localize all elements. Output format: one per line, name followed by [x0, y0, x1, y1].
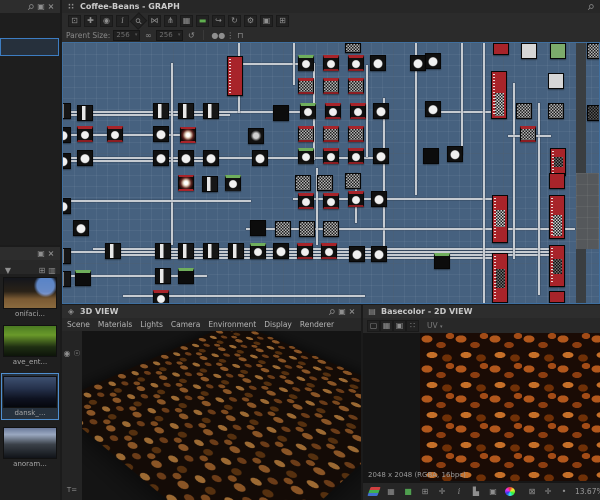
graph-node-noise[interactable]	[317, 175, 333, 191]
library-item[interactable]: anoram...	[2, 427, 58, 468]
graph-size-toolbar: Parent Size: 256▾ ∞ 256▾ ↺ ●●⋮⊓	[62, 28, 600, 42]
background-color-icon[interactable]: ■	[403, 487, 413, 497]
graph-node-redshape[interactable]	[297, 243, 313, 259]
graph-node-noise[interactable]	[345, 43, 361, 53]
graph-wire	[366, 65, 368, 157]
graph-node-blend[interactable]	[77, 105, 93, 121]
graph-node-shape[interactable]	[62, 198, 71, 214]
dot-icon[interactable]: •	[559, 487, 569, 497]
uv-select[interactable]: UV ▾	[427, 321, 443, 330]
basecolor-texture	[420, 333, 600, 481]
image-info-icon[interactable]: ▣	[488, 487, 498, 497]
image-icon[interactable]: ▦	[180, 15, 193, 27]
graph-node-blend[interactable]	[178, 103, 194, 119]
graph-node-blend[interactable]	[228, 243, 244, 259]
graph-node-redn3[interactable]	[550, 148, 566, 176]
graph-node-green[interactable]	[550, 43, 566, 59]
graph-node-greenshape[interactable]	[300, 103, 316, 119]
graph-node-redshape[interactable]	[348, 148, 364, 164]
explorer-panel: ⚲▣×	[0, 0, 60, 245]
view2d-viewport[interactable]: 2048 x 2048 (RGBA, 16bpc)	[363, 333, 600, 483]
graph-panel: ∷ Coffee-Beans - GRAPH ⚲ ⊡✚◉i⚲⋈⋔▦▬↪↻⚙▣⊞ …	[62, 0, 600, 304]
zoom-level[interactable]: 13.67%	[575, 487, 600, 496]
library-thumbnails: onifaci...ave_ent...dansk_...anoram...	[0, 274, 60, 468]
export-icon[interactable]: ▣	[260, 15, 273, 27]
graph-wire	[171, 63, 173, 245]
graph-node-red[interactable]	[549, 173, 565, 189]
graph-node-redn3[interactable]	[492, 253, 508, 303]
graph-node-redshape[interactable]	[325, 103, 341, 119]
graph-wire	[513, 83, 515, 259]
view2d-panel: ▤ Basecolor - 2D VIEW ▢▦▣∷ UV ▾ 2048 x 2…	[363, 305, 600, 500]
thumbnail-label: anoram...	[2, 460, 58, 468]
graph-node-blend[interactable]	[62, 103, 71, 119]
graph-wire	[246, 228, 575, 230]
graph-node-shape[interactable]	[178, 150, 194, 166]
parent-height-select[interactable]: 256▾	[156, 30, 183, 41]
graph-node-noise[interactable]	[299, 221, 315, 237]
graph-node-white[interactable]	[548, 73, 564, 89]
thumbnail-label: onifaci...	[2, 310, 58, 318]
thumbnail-label: dansk_...	[2, 409, 58, 417]
pin-frame-icon[interactable]: ⊓	[235, 30, 245, 40]
graph-node-glow[interactable]	[178, 175, 194, 191]
center-view-icon[interactable]: ✛	[543, 487, 553, 497]
explorer-selected-item[interactable]	[0, 38, 59, 56]
close-icon[interactable]: ×	[347, 307, 357, 317]
view2d-bottom-toolbar: ▦■⊞✛i▙▣ ⊠✛• 13.67%	[363, 483, 600, 500]
tools-icon[interactable]: ⚙	[244, 15, 257, 27]
parent-width-select[interactable]: 256▾	[113, 30, 140, 41]
view2d-icon: ▤	[367, 307, 377, 317]
graph-node-shape[interactable]	[373, 103, 389, 119]
search-icon[interactable]: ⚲	[130, 12, 148, 30]
graph-node-darkgreen[interactable]	[75, 270, 91, 286]
graph-tab-title[interactable]: Coffee-Beans - GRAPH	[80, 2, 180, 11]
substance-designer-window: ⚲▣× ▣× ▼ ⊞▥ onifaci...ave_ent...dansk_..…	[0, 0, 600, 500]
menu-renderer[interactable]: Renderer	[300, 320, 334, 329]
view3d-header: ◈ 3D VIEW ⚲▣×	[62, 305, 361, 318]
graph-node-shape[interactable]	[373, 148, 389, 164]
menu-environment[interactable]: Environment	[208, 320, 256, 329]
view3d-panel: ◈ 3D VIEW ⚲▣× SceneMaterialsLightsCamera…	[62, 305, 361, 500]
graph-node-glow[interactable]	[180, 127, 196, 143]
menu-camera[interactable]: Camera	[171, 320, 200, 329]
graph-node-shape[interactable]	[203, 150, 219, 166]
graph-node-shape[interactable]	[153, 126, 169, 142]
view3d-menubar: SceneMaterialsLightsCameraEnvironmentDis…	[62, 318, 361, 331]
explorer-header: ⚲▣×	[0, 0, 60, 13]
graph-node-blend[interactable]	[62, 248, 71, 264]
menu-display[interactable]: Display	[264, 320, 292, 329]
graph-node-shape[interactable]	[425, 53, 441, 69]
graph-node-darkgreen[interactable]	[178, 268, 194, 284]
library-item[interactable]: dansk_...	[1, 373, 59, 420]
graph-node-redshape[interactable]	[350, 103, 366, 119]
graph-node-shape[interactable]	[371, 191, 387, 207]
info-icon[interactable]: i	[116, 15, 129, 27]
graph-tab-icon: ∷	[66, 2, 76, 12]
menu-lights[interactable]: Lights	[140, 320, 163, 329]
graph-frame[interactable]	[576, 173, 600, 249]
graph-node-rednoise[interactable]	[298, 126, 314, 142]
graph-wire	[538, 103, 540, 295]
checker-icon[interactable]: ▦	[386, 487, 396, 497]
graph-node-blend[interactable]	[178, 243, 194, 259]
filter-icon[interactable]: ▼	[3, 265, 13, 275]
parent-size-label: Parent Size:	[66, 31, 110, 40]
graph-node-tallred[interactable]	[227, 56, 243, 96]
graph-wire	[293, 43, 295, 85]
graph-tabbar: ∷ Coffee-Beans - GRAPH ⚲	[62, 0, 600, 13]
graph-node-dark[interactable]	[273, 105, 289, 121]
fit-view-icon[interactable]: ⊠	[527, 487, 537, 497]
bulb-icon[interactable]: ☉	[72, 349, 82, 359]
histogram-icon[interactable]: ▙	[471, 487, 481, 497]
copy-icon[interactable]: ▣	[393, 320, 406, 332]
graph-node-redshape[interactable]	[323, 193, 339, 209]
colorwheel-icon[interactable]	[505, 487, 515, 496]
graph-node-shape[interactable]	[252, 150, 268, 166]
graph-node-noise[interactable]	[548, 103, 564, 119]
graph-node-rednoise[interactable]	[298, 78, 314, 94]
cursor-pick-icon[interactable]: ✛	[437, 487, 447, 497]
graph-node-redshape[interactable]	[321, 243, 337, 259]
graph-node-tallrednoise[interactable]	[491, 71, 507, 119]
link-nodes-icon[interactable]: ⋈	[148, 15, 161, 27]
graph-node-rednoise[interactable]	[323, 78, 339, 94]
graph-node-ball[interactable]	[248, 128, 264, 144]
thumbnail-label: ave_ent...	[2, 358, 58, 366]
pan-icon[interactable]: ✚	[84, 15, 97, 27]
view3d-side-toolbar: ◉☉ T=	[62, 331, 82, 500]
reset-size-icon[interactable]: ↺	[186, 30, 196, 40]
grid-view-icon[interactable]: ⊞	[37, 265, 47, 275]
graph-node-noise[interactable]	[345, 173, 361, 189]
graph-canvas[interactable]	[62, 42, 600, 304]
graph-node-redshape[interactable]	[348, 191, 364, 207]
snap-dots-icon[interactable]: ⋮	[225, 30, 235, 40]
environment-thumbnail[interactable]	[3, 325, 57, 357]
graph-node-redshape[interactable]	[298, 193, 314, 209]
menu-materials[interactable]: Materials	[98, 320, 132, 329]
view2d-toolbar: ▢▦▣∷ UV ▾	[363, 318, 600, 333]
graph-wire	[461, 43, 463, 155]
graph-node-shape[interactable]	[62, 153, 71, 169]
graph-node-dark[interactable]	[250, 220, 266, 236]
view3d-icon: ◈	[66, 307, 76, 317]
graph-toolbar: ⊡✚◉i⚲⋈⋔▦▬↪↻⚙▣⊞	[62, 13, 600, 28]
graph-node-redshape[interactable]	[323, 55, 339, 71]
graph-wire	[483, 43, 485, 303]
texture-info-label: 2048 x 2048 (RGBA, 16bpc)	[368, 471, 466, 479]
graph-node-greenshape[interactable]	[225, 175, 241, 191]
graph-node-darknoise[interactable]	[587, 105, 600, 121]
channels-icon[interactable]	[367, 487, 380, 496]
graph-node-shape[interactable]	[273, 243, 289, 259]
graph-node-red[interactable]	[549, 291, 565, 303]
coffee-beans-plane	[82, 331, 361, 500]
library-item[interactable]: ave_ent...	[2, 325, 58, 366]
graph-node-red[interactable]	[493, 43, 509, 55]
graph-node-shape[interactable]	[371, 246, 387, 262]
node-tree-icon[interactable]: ⋔	[164, 15, 177, 27]
graph-node-shape[interactable]	[153, 150, 169, 166]
graph-node-shape[interactable]	[62, 127, 71, 143]
library-toolbar: ▼ ⊞▥	[0, 260, 60, 274]
detail-view-icon[interactable]: ▥	[47, 265, 57, 275]
graph-node-tallrednoise2[interactable]	[492, 195, 508, 243]
graph-node-rednoise[interactable]	[323, 126, 339, 142]
graph-node-shape[interactable]	[425, 101, 441, 117]
graph-node-noise[interactable]	[275, 221, 291, 237]
graph-node-redshape[interactable]	[153, 290, 169, 304]
transform-frame-icon[interactable]: ⊡	[68, 15, 81, 27]
graph-node-white[interactable]	[521, 43, 537, 59]
graph-node-shape[interactable]	[349, 246, 365, 262]
graph-node-shape[interactable]	[370, 55, 386, 71]
grid-icon[interactable]: ⊞	[420, 487, 430, 497]
graph-node-rednoise[interactable]	[348, 78, 364, 94]
graph-node-redshape[interactable]	[77, 126, 93, 142]
graph-node-blend[interactable]	[62, 271, 71, 287]
view2d-title: Basecolor - 2D VIEW	[381, 307, 472, 316]
graph-node-greenshape[interactable]	[250, 243, 266, 259]
graph-node-greenshape[interactable]	[298, 148, 314, 164]
graph-node-blend[interactable]	[155, 243, 171, 259]
graph-node-shape[interactable]	[410, 55, 426, 71]
color-mode-icon[interactable]: ▬	[196, 15, 209, 27]
view3d-title: 3D VIEW	[80, 307, 118, 316]
graph-node-greenshape[interactable]	[298, 55, 314, 71]
graph-node-dark[interactable]	[423, 148, 439, 164]
link-graph-icon[interactable]: ∷	[406, 320, 419, 332]
graph-node-shape[interactable]	[73, 220, 89, 236]
view2d-header: ▤ Basecolor - 2D VIEW	[363, 305, 600, 318]
graph-node-redshape[interactable]	[107, 126, 123, 142]
frame-icon[interactable]: ⊞	[276, 15, 289, 27]
graph-node-tallrednoise[interactable]	[549, 195, 565, 239]
camera-icon[interactable]: ◉	[100, 15, 113, 27]
graph-node-noise[interactable]	[323, 221, 339, 237]
dot-pair-icon[interactable]: ●●	[211, 30, 225, 40]
view3d-viewport[interactable]	[82, 331, 361, 500]
library-item[interactable]: onifaci...	[2, 277, 58, 318]
environment-thumbnail[interactable]	[3, 427, 57, 459]
graph-node-shape[interactable]	[447, 146, 463, 162]
graph-node-blend[interactable]	[153, 103, 169, 119]
graph-node-noise[interactable]	[295, 175, 311, 191]
graph-node-noise[interactable]	[516, 103, 532, 119]
environment-thumbnail[interactable]	[3, 277, 57, 309]
info-icon[interactable]: i	[454, 487, 464, 497]
new-view-icon[interactable]: ▢	[367, 320, 380, 332]
graph-node-blend[interactable]	[155, 268, 171, 284]
graph-node-shape[interactable]	[77, 150, 93, 166]
library-panel: ▣× ▼ ⊞▥ onifaci...ave_ent...dansk_...ano…	[0, 247, 60, 500]
graph-node-rednoise[interactable]	[520, 126, 536, 142]
wire-style-icon[interactable]: ↪	[212, 15, 225, 27]
compute-icon[interactable]: ↻	[228, 15, 241, 27]
graph-node-blend[interactable]	[105, 243, 121, 259]
graph-node-blend[interactable]	[203, 243, 219, 259]
graph-node-blend[interactable]	[202, 176, 218, 192]
graph-node-rednoise[interactable]	[348, 126, 364, 142]
graph-pin-icon[interactable]: ⚲	[584, 0, 598, 14]
menu-scene[interactable]: Scene	[67, 320, 90, 329]
camera-icon[interactable]: ◉	[62, 349, 72, 359]
link-size-icon[interactable]: ∞	[143, 30, 153, 40]
environment-thumbnail[interactable]	[3, 376, 57, 408]
explorer-body[interactable]	[0, 13, 60, 245]
graph-node-redn3[interactable]	[549, 245, 565, 287]
graph-node-darkgreen[interactable]	[434, 253, 450, 269]
close-icon[interactable]: ×	[46, 2, 56, 12]
view3d-overlay-label[interactable]: T=	[67, 486, 77, 494]
graph-wire	[62, 200, 251, 202]
graph-node-noise[interactable]	[587, 43, 600, 59]
graph-node-blend[interactable]	[203, 103, 219, 119]
graph-node-redshape[interactable]	[348, 55, 364, 71]
save-icon[interactable]: ▦	[380, 320, 393, 332]
graph-node-redshape[interactable]	[323, 148, 339, 164]
